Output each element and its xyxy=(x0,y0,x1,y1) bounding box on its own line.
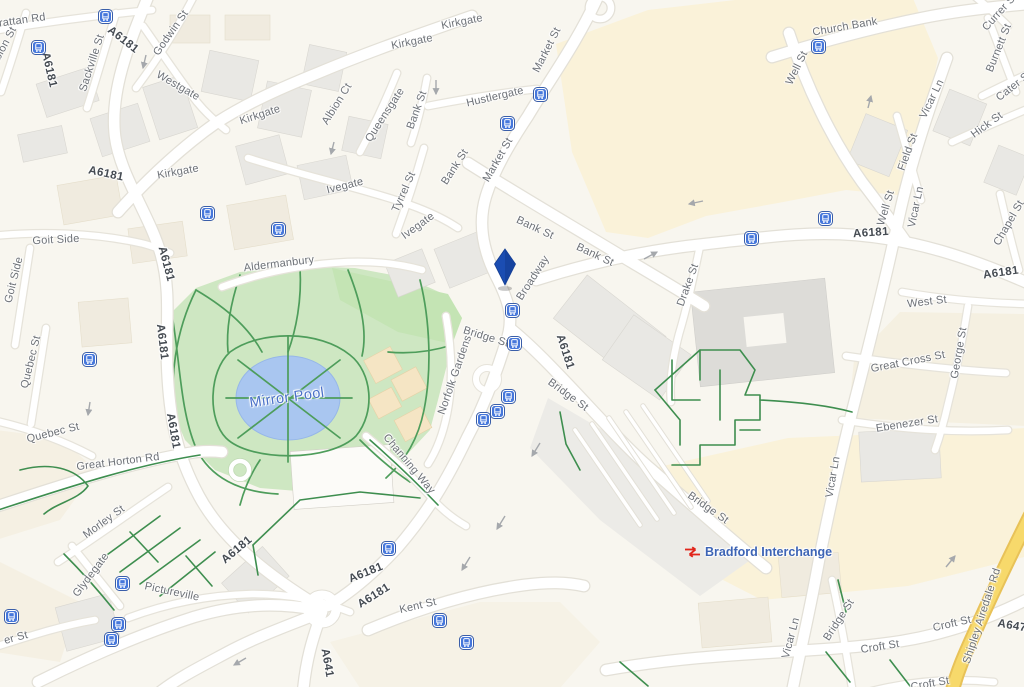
bus-glyph xyxy=(100,11,111,22)
bus-stop-icon[interactable] xyxy=(501,117,514,130)
bus-glyph xyxy=(503,391,514,402)
bus-glyph xyxy=(478,414,489,425)
bus-stop-icon[interactable] xyxy=(5,610,18,623)
bus-glyph xyxy=(746,233,757,244)
bus-stop-icon[interactable] xyxy=(477,413,490,426)
bus-glyph xyxy=(273,224,284,235)
bus-stop-icon[interactable] xyxy=(819,212,832,225)
bus-stop-icon[interactable] xyxy=(99,10,112,23)
bus-stop-icon[interactable] xyxy=(460,636,473,649)
bus-stop-icon[interactable] xyxy=(745,232,758,245)
bus-glyph xyxy=(6,611,17,622)
bus-glyph xyxy=(461,637,472,648)
bus-stop-icon[interactable] xyxy=(508,337,521,350)
bus-stop-icon[interactable] xyxy=(116,577,129,590)
bus-stop-icon[interactable] xyxy=(32,41,45,54)
bus-glyph xyxy=(202,208,213,219)
map-viewport[interactable]: A6181A6181A6181A6181A6181A6181A6181A6181… xyxy=(0,0,1024,687)
bus-stop-icon[interactable] xyxy=(433,614,446,627)
bus-stop-icon[interactable] xyxy=(272,223,285,236)
bus-stop-icon[interactable] xyxy=(382,542,395,555)
bus-glyph xyxy=(106,634,117,645)
national-rail-icon xyxy=(684,546,701,558)
bus-stop-icon[interactable] xyxy=(491,405,504,418)
pin-shadow xyxy=(498,286,512,291)
bus-glyph xyxy=(434,615,445,626)
bus-stop-icon[interactable] xyxy=(534,88,547,101)
bus-glyph xyxy=(820,213,831,224)
bus-stop-icon[interactable] xyxy=(201,207,214,220)
bus-glyph xyxy=(113,619,124,630)
bus-glyph xyxy=(509,338,520,349)
bus-stop-icon[interactable] xyxy=(112,618,125,631)
bus-glyph xyxy=(33,42,44,53)
bus-stop-icon[interactable] xyxy=(812,40,825,53)
pin-shade xyxy=(505,249,516,285)
bus-glyph xyxy=(535,89,546,100)
bus-stop-icon[interactable] xyxy=(502,390,515,403)
bus-stop-icon[interactable] xyxy=(105,633,118,646)
bus-stop-icon[interactable] xyxy=(83,353,96,366)
bus-glyph xyxy=(383,543,394,554)
bus-glyph xyxy=(84,354,95,365)
station-poi[interactable]: Bradford Interchange xyxy=(684,545,832,559)
bus-glyph xyxy=(502,118,513,129)
bus-glyph xyxy=(813,41,824,52)
bus-glyph xyxy=(117,578,128,589)
station-label: Bradford Interchange xyxy=(705,545,832,559)
bus-stop-icon[interactable] xyxy=(506,304,519,317)
bus-glyph xyxy=(492,406,503,417)
bus-glyph xyxy=(507,305,518,316)
